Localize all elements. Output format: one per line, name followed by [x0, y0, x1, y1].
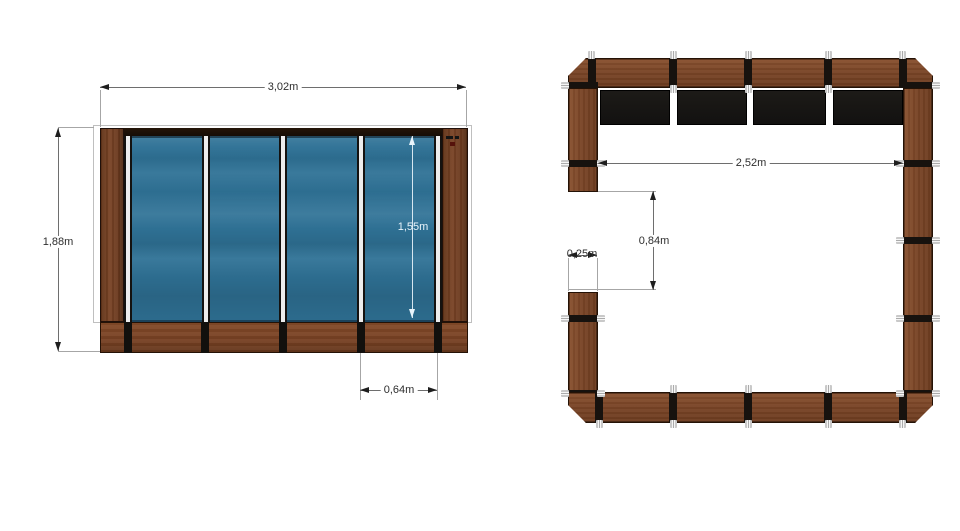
plan-top-wall — [568, 58, 933, 88]
connector-clip — [745, 85, 752, 93]
plank-joint — [824, 392, 832, 423]
mullion-foot — [279, 322, 287, 353]
extension-line — [568, 258, 569, 291]
mullion — [124, 136, 132, 322]
connector-clip — [561, 315, 569, 322]
connector-clip — [825, 385, 832, 393]
arrow-down — [409, 309, 415, 318]
glass-panel — [210, 136, 280, 322]
plan-left-wall-upper — [568, 88, 598, 192]
mullion — [434, 136, 442, 322]
extension-line — [466, 90, 467, 127]
connector-clip — [596, 420, 603, 428]
connector-clip — [932, 390, 940, 397]
plank-joint — [568, 315, 598, 322]
arrow-right — [457, 84, 466, 90]
connector-clip — [896, 390, 904, 397]
connector-clip — [670, 385, 677, 393]
connector-clip — [932, 160, 940, 167]
extension-line — [58, 127, 94, 128]
plank-joint — [568, 160, 598, 167]
plank-joint — [824, 58, 832, 88]
dimension-label: 0,64m — [381, 384, 418, 396]
plank-joint — [744, 58, 752, 88]
reference-line — [568, 289, 656, 290]
connector-clip — [932, 82, 940, 89]
dimension-label: 2,52m — [733, 157, 770, 169]
dimension-label: 0,25m — [564, 248, 601, 260]
arrow-right — [894, 160, 903, 166]
arrow-right — [428, 387, 437, 393]
extension-line — [597, 258, 598, 291]
extension-line — [437, 353, 438, 400]
arrow-left — [360, 387, 369, 393]
arrow-left — [598, 160, 607, 166]
plank-joint — [669, 392, 677, 423]
right-wood-post — [442, 128, 468, 322]
left-wood-post — [100, 128, 124, 322]
brand-mark — [455, 136, 459, 139]
plan-glass-panel — [753, 90, 826, 125]
connector-clip — [745, 51, 752, 59]
connector-clip — [597, 390, 605, 397]
connector-clip — [745, 385, 752, 393]
connector-clip — [561, 160, 569, 167]
glass-panel — [287, 136, 357, 322]
arrow-up — [55, 128, 61, 137]
connector-clip — [597, 315, 605, 322]
connector-clip — [745, 420, 752, 428]
dimension-label: 1,55m — [395, 221, 432, 233]
connector-clip — [896, 237, 904, 244]
plan-left-wall-lower — [568, 292, 598, 392]
mullion-foot — [357, 322, 365, 353]
connector-clip — [561, 82, 569, 89]
arrow-up — [409, 136, 415, 145]
plank-joint — [744, 392, 752, 423]
plank-joint — [903, 237, 933, 244]
plan-glass-panel — [600, 90, 670, 125]
dimension-label: 0,84m — [636, 235, 673, 247]
plan-glass-panel — [833, 90, 903, 125]
brand-mark — [450, 142, 455, 146]
plank-joint — [669, 58, 677, 88]
mullion — [357, 136, 365, 322]
connector-clip — [670, 51, 677, 59]
technical-drawing-canvas: 3,02m 1,88m 1,55m 0,64m — [0, 0, 960, 531]
dimension-label: 3,02m — [265, 81, 302, 93]
connector-clip — [825, 420, 832, 428]
connector-clip — [899, 51, 906, 59]
connector-clip — [896, 315, 904, 322]
mullion — [202, 136, 210, 322]
connector-clip — [825, 51, 832, 59]
dimension-label: 1,88m — [40, 236, 77, 248]
connector-clip — [588, 51, 595, 59]
arrow-up — [650, 191, 656, 200]
top-rail — [124, 128, 442, 136]
reference-line — [598, 191, 656, 192]
mullion-foot — [124, 322, 132, 353]
plank-joint — [903, 160, 933, 167]
extension-line — [100, 90, 101, 127]
glass-panel — [132, 136, 202, 322]
plank-joint — [903, 315, 933, 322]
arrow-left — [100, 84, 109, 90]
connector-clip — [670, 420, 677, 428]
connector-clip — [932, 315, 940, 322]
connector-clip — [670, 85, 677, 93]
connector-clip — [932, 237, 940, 244]
mullion-foot — [434, 322, 442, 353]
plan-bottom-wall — [568, 392, 933, 423]
connector-clip — [899, 420, 906, 428]
extension-line — [58, 351, 100, 352]
mullion-foot — [201, 322, 209, 353]
connector-clip — [561, 390, 569, 397]
mullion — [279, 136, 287, 322]
arrow-down — [55, 342, 61, 351]
plan-glass-panel — [677, 90, 747, 125]
brand-mark — [446, 136, 453, 139]
arrow-down — [650, 281, 656, 290]
connector-clip — [825, 85, 832, 93]
